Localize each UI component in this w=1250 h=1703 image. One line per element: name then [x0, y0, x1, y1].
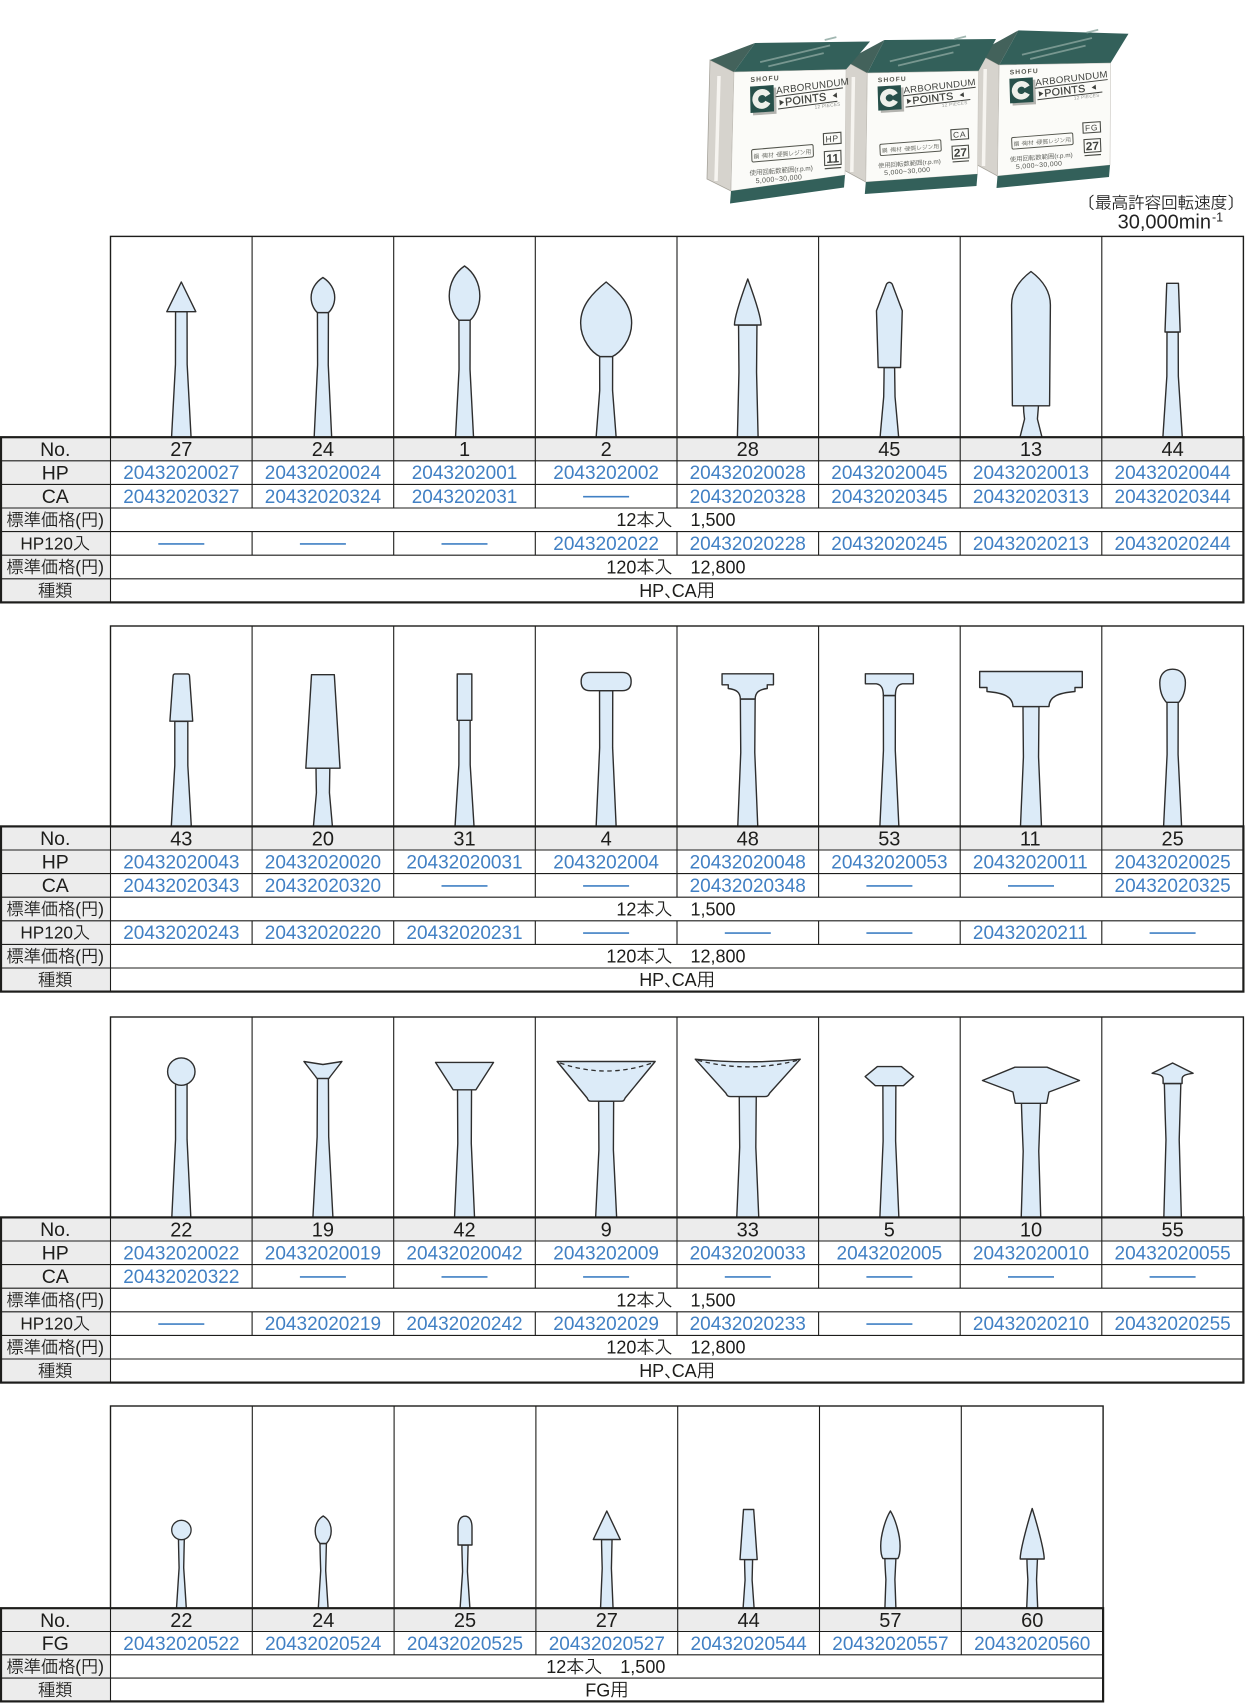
svg-text:FG: FG — [1085, 122, 1099, 133]
svg-text:(: ( — [75, 1337, 81, 1357]
svg-text:20432020343: 20432020343 — [123, 876, 239, 897]
svg-text:27: 27 — [596, 1610, 618, 1632]
svg-text:20432020328: 20432020328 — [690, 487, 806, 508]
svg-text:20432020013: 20432020013 — [973, 463, 1089, 484]
svg-text:CA: CA — [42, 875, 69, 897]
svg-text:20432020324: 20432020324 — [265, 487, 382, 508]
svg-text:20432020033: 20432020033 — [690, 1243, 806, 1264]
svg-text:53: 53 — [878, 828, 900, 850]
svg-text:20432020044: 20432020044 — [1115, 463, 1232, 484]
svg-text:20432020220: 20432020220 — [265, 923, 381, 944]
svg-text:20432020348: 20432020348 — [690, 876, 806, 897]
svg-text:HP: HP — [42, 852, 69, 874]
svg-text:20432020345: 20432020345 — [831, 487, 947, 508]
svg-text:20432020011: 20432020011 — [973, 852, 1088, 873]
svg-text:19: 19 — [312, 1219, 334, 1241]
svg-text:44: 44 — [1162, 439, 1184, 461]
svg-text:20432020244: 20432020244 — [1115, 534, 1232, 555]
svg-text:HP: HP — [639, 970, 664, 990]
svg-text:(: ( — [75, 510, 81, 530]
svg-text:20432020527: 20432020527 — [549, 1634, 665, 1655]
svg-text:20: 20 — [312, 828, 334, 850]
svg-text:): ) — [98, 899, 104, 919]
svg-text:2043202004: 2043202004 — [553, 852, 659, 873]
svg-text:20432020027: 20432020027 — [123, 463, 239, 484]
svg-text:CA: CA — [953, 130, 967, 140]
svg-text:20432020031: 20432020031 — [406, 852, 522, 873]
svg-text:CA: CA — [672, 1361, 697, 1381]
svg-text:20432020228: 20432020228 — [690, 534, 806, 555]
svg-text:20432020233: 20432020233 — [690, 1314, 806, 1335]
svg-text:20432020325: 20432020325 — [1115, 876, 1231, 897]
svg-text:CA: CA — [672, 970, 697, 990]
svg-text:45: 45 — [878, 439, 900, 461]
svg-text:2043202031: 2043202031 — [412, 487, 518, 508]
svg-text:20432020255: 20432020255 — [1115, 1314, 1231, 1335]
svg-text:120: 120 — [606, 557, 636, 577]
svg-text:60: 60 — [1021, 1610, 1043, 1632]
svg-text:(r.p.m): (r.p.m) — [922, 158, 941, 166]
svg-text:1,500: 1,500 — [691, 510, 736, 530]
svg-text:20432020024: 20432020024 — [265, 463, 382, 484]
svg-text:12,800: 12,800 — [691, 557, 746, 577]
svg-text:20432020231: 20432020231 — [406, 923, 522, 944]
svg-text:12,800: 12,800 — [691, 1338, 746, 1358]
svg-text:10: 10 — [1020, 1219, 1042, 1241]
svg-text:1,500: 1,500 — [691, 899, 736, 919]
svg-text:1,500: 1,500 — [620, 1657, 665, 1677]
svg-text:HP120: HP120 — [20, 534, 73, 554]
svg-text:20432020042: 20432020042 — [406, 1243, 522, 1264]
svg-text:57: 57 — [879, 1610, 901, 1632]
svg-text:20432020327: 20432020327 — [123, 487, 239, 508]
svg-text:FG: FG — [42, 1633, 69, 1655]
svg-text:20432020525: 20432020525 — [407, 1634, 523, 1655]
svg-text:20432020242: 20432020242 — [406, 1314, 522, 1335]
svg-text:20432020213: 20432020213 — [973, 534, 1089, 555]
svg-text:20432020211: 20432020211 — [973, 923, 1088, 944]
svg-text:2043202029: 2043202029 — [553, 1314, 659, 1335]
svg-text:HP: HP — [639, 1361, 664, 1381]
svg-text:2043202009: 2043202009 — [553, 1243, 659, 1264]
svg-text:): ) — [98, 1290, 104, 1310]
svg-text:HP: HP — [825, 133, 839, 144]
svg-text:20432020243: 20432020243 — [123, 923, 239, 944]
svg-text:20432020010: 20432020010 — [973, 1243, 1089, 1264]
svg-text:12,800: 12,800 — [691, 947, 746, 967]
svg-text:20432020219: 20432020219 — [265, 1314, 381, 1335]
svg-text:(r.p.m): (r.p.m) — [1054, 152, 1073, 160]
svg-text:20432020043: 20432020043 — [123, 852, 239, 873]
svg-text:11: 11 — [826, 151, 839, 166]
svg-text:20432020322: 20432020322 — [123, 1267, 239, 1288]
svg-text:20432020055: 20432020055 — [1115, 1243, 1231, 1264]
svg-text:120: 120 — [606, 1338, 636, 1358]
svg-text:25: 25 — [1162, 828, 1184, 850]
svg-text:20432020210: 20432020210 — [973, 1314, 1089, 1335]
svg-text:2043202001: 2043202001 — [412, 463, 518, 484]
svg-text:HP: HP — [639, 581, 664, 601]
svg-text:4: 4 — [601, 828, 612, 850]
svg-text:20432020320: 20432020320 — [265, 876, 381, 897]
svg-text:5: 5 — [884, 1219, 895, 1241]
svg-text:HP: HP — [42, 462, 69, 484]
svg-text:CA: CA — [42, 486, 69, 508]
svg-text:43: 43 — [170, 828, 192, 850]
svg-text:12: 12 — [616, 510, 636, 530]
svg-text:No.: No. — [40, 1219, 70, 1241]
svg-text:44: 44 — [738, 1610, 760, 1632]
svg-text:20432020028: 20432020028 — [690, 463, 806, 484]
svg-text:12: 12 — [546, 1657, 566, 1677]
svg-text:12: 12 — [616, 1290, 636, 1310]
svg-text:20432020560: 20432020560 — [974, 1634, 1090, 1655]
svg-text:20432020245: 20432020245 — [831, 534, 947, 555]
svg-text:No.: No. — [40, 828, 70, 850]
svg-text:20432020557: 20432020557 — [832, 1634, 948, 1655]
svg-text:12: 12 — [616, 899, 636, 919]
svg-text:1,500: 1,500 — [691, 1290, 736, 1310]
svg-text:CA: CA — [42, 1266, 69, 1288]
svg-text:11: 11 — [1020, 828, 1041, 850]
svg-text:20432020045: 20432020045 — [831, 463, 947, 484]
svg-text:CA: CA — [672, 581, 697, 601]
svg-text:120: 120 — [606, 947, 636, 967]
svg-text:No.: No. — [40, 1610, 70, 1632]
svg-text:27: 27 — [954, 146, 968, 160]
svg-text:20432020022: 20432020022 — [123, 1243, 239, 1264]
svg-text:HP: HP — [42, 1243, 69, 1265]
svg-text:2043202002: 2043202002 — [553, 463, 659, 484]
svg-text:(: ( — [75, 1657, 81, 1677]
svg-text:20432020053: 20432020053 — [831, 852, 947, 873]
svg-text:2: 2 — [601, 439, 612, 461]
svg-text:20432020524: 20432020524 — [265, 1634, 382, 1655]
svg-text:-1: -1 — [1212, 211, 1223, 225]
svg-text:48: 48 — [737, 828, 759, 850]
svg-text:31: 31 — [453, 828, 475, 850]
svg-text:20432020544: 20432020544 — [691, 1634, 808, 1655]
svg-text:22: 22 — [170, 1610, 192, 1632]
svg-text:28: 28 — [737, 439, 759, 461]
svg-text:24: 24 — [312, 1610, 334, 1632]
svg-text:20432020025: 20432020025 — [1115, 852, 1231, 873]
svg-text:1: 1 — [459, 439, 470, 461]
svg-text:): ) — [98, 1337, 104, 1357]
svg-text:20432020020: 20432020020 — [265, 852, 381, 873]
svg-text:FG: FG — [585, 1680, 610, 1700]
svg-text:(: ( — [75, 899, 81, 919]
svg-text:24: 24 — [312, 439, 334, 461]
svg-text:27: 27 — [170, 439, 192, 461]
svg-text:HP120: HP120 — [20, 1314, 73, 1334]
svg-text:42: 42 — [453, 1219, 475, 1241]
svg-text:HP120: HP120 — [20, 923, 73, 943]
svg-text:No.: No. — [40, 439, 70, 461]
svg-text:13: 13 — [1020, 439, 1042, 461]
svg-text:30,000min: 30,000min — [1118, 212, 1211, 234]
svg-text:2043202005: 2043202005 — [837, 1243, 943, 1264]
svg-text:2043202022: 2043202022 — [553, 534, 659, 555]
svg-text:): ) — [98, 510, 104, 530]
svg-text:(: ( — [75, 557, 81, 577]
svg-text:9: 9 — [601, 1219, 612, 1241]
svg-text:22: 22 — [170, 1219, 192, 1241]
svg-text:): ) — [98, 946, 104, 966]
svg-text:20432020522: 20432020522 — [123, 1634, 239, 1655]
svg-text:55: 55 — [1162, 1219, 1184, 1241]
svg-text:20432020344: 20432020344 — [1115, 487, 1232, 508]
svg-text:): ) — [98, 557, 104, 577]
svg-text:20432020313: 20432020313 — [973, 487, 1089, 508]
svg-text:27: 27 — [1086, 140, 1100, 154]
svg-text:): ) — [98, 1657, 104, 1677]
svg-text:20432020019: 20432020019 — [265, 1243, 381, 1264]
svg-text:33: 33 — [737, 1219, 759, 1241]
svg-text:(: ( — [75, 1290, 81, 1310]
svg-text:(: ( — [75, 946, 81, 966]
svg-text:25: 25 — [454, 1610, 476, 1632]
svg-text:20432020048: 20432020048 — [690, 852, 806, 873]
